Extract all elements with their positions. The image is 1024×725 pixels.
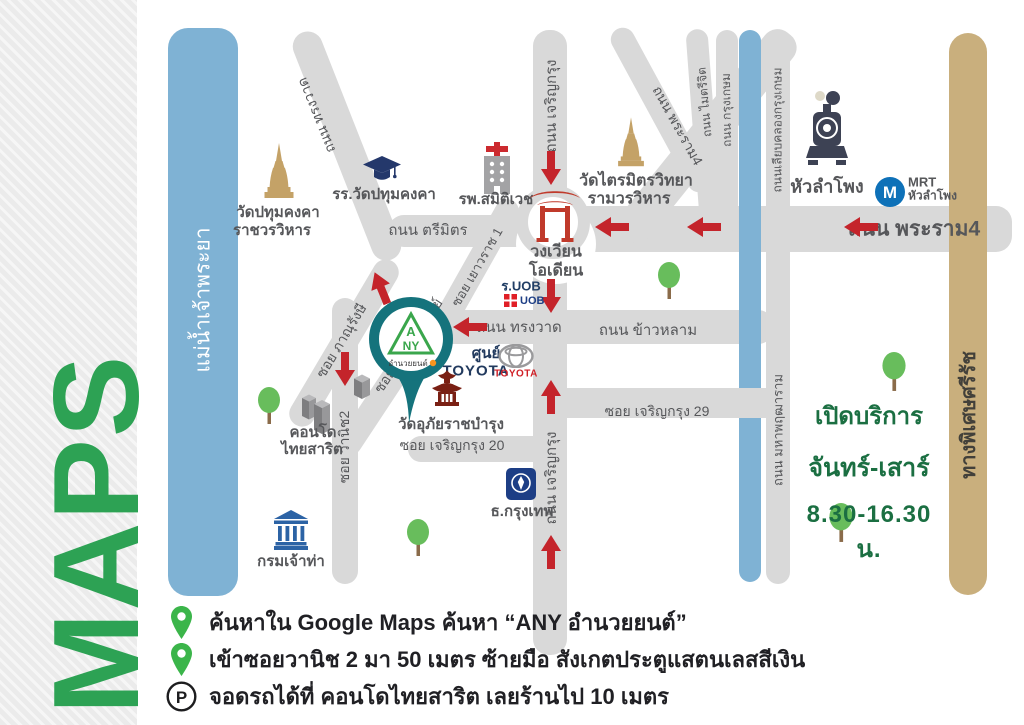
any-pin-letter-a: A (406, 324, 416, 339)
page-title: MAPS (26, 354, 166, 714)
arrow-charoenkrung-north-2 (541, 535, 561, 569)
mrt-m-letter: M (883, 183, 897, 202)
sirat-expressway (949, 33, 987, 595)
arrow-rama4-west-1 (595, 217, 629, 237)
school-label: รร.วัดปทุมคงคา (332, 182, 436, 206)
legend-text-parking: จอดรถได้ที่ คอนโดไทยสาริต เลยร้านไป 10 เ… (209, 679, 669, 714)
government-building-icon (274, 510, 308, 550)
legend-text-search: ค้นหาใน Google Maps ค้นหา “ANY อำนวยยนต์… (209, 605, 687, 640)
uob-logo-text: UOB (520, 295, 544, 307)
road-label-trimit: ถนน ตรีมิตร (388, 218, 467, 242)
wat-pathum-label-2: ราชวรวิหาร (233, 218, 311, 242)
map-pin-icon (163, 643, 199, 676)
road-label-liapkhlong: ถนนเลียบคลองกรุงเกษม (769, 68, 788, 193)
road-label-mahaphruttharam: ถนน มหาพฤฒาราม (768, 374, 789, 486)
legend-row-directions: เข้าซอยวานิช 2 มา 50 เมตร ซ้ายมือ สังเกต… (163, 641, 843, 678)
hours-line-1: เปิดบริการ (791, 396, 947, 435)
river-label: แม่น้ำเจ้าพระยา (187, 227, 220, 372)
tree-icon (657, 262, 681, 300)
chinatown-gate-icon (530, 184, 580, 242)
road-label-charoenkrung-top: ถนน เจริญกรุง (539, 60, 563, 153)
stupa-icon (261, 143, 297, 203)
mrt-label-2: หัวลำโพง (908, 187, 957, 206)
tree-icon (257, 387, 281, 425)
toyota-label-1: ศูนย์ (472, 341, 501, 365)
road-label-charoenkrung29: ซอย เจริญกรุง 29 (605, 401, 710, 423)
opening-hours: เปิดบริการ จันทร์-เสาร์ 8.30-16.30 น. (791, 396, 947, 568)
legend: ค้นหาใน Google Maps ค้นหา “ANY อำนวยยนต์… (163, 604, 843, 715)
arrow-songwat-west (453, 317, 487, 337)
mrt-logo-icon: M (874, 176, 906, 208)
arrow-rama4-west-3 (844, 217, 878, 237)
parking-icon: P (163, 681, 199, 712)
marine-dept-label: กรมเจ้าท่า (257, 549, 325, 573)
arrow-charoenkrung-south-1 (541, 151, 561, 185)
any-pin-caption: อำนวยยนต์ (388, 358, 427, 368)
krung-kasem-canal (739, 30, 761, 582)
hours-line-3: 8.30-16.30 น. (791, 501, 947, 568)
tree-icon (406, 519, 430, 557)
legend-row-search: ค้นหาใน Google Maps ค้นหา “ANY อำนวยยนต์… (163, 604, 843, 641)
any-shop-pin: A NY อำนวยยนต์ (366, 295, 456, 431)
hospital-label: รพ.สมิติเวช (459, 187, 534, 211)
parking-symbol: P (175, 688, 186, 707)
bangkok-bank-logo-icon (506, 468, 536, 500)
map-pin-icon (163, 606, 199, 639)
hua-lamphong-label: หัวลำโพง (790, 172, 863, 201)
toyota-logo-text: TOYOTA (494, 369, 538, 380)
road-label-songwat-h: ถนน ทรงวาด (476, 315, 562, 339)
road-label-charoenkrung20: ซอย เจริญกรุง 20 (400, 435, 505, 457)
uob-logo: UOB (504, 294, 544, 307)
bangkok-bank-label: ธ.กรุงเทพ (491, 499, 554, 523)
arrow-charoenkrung-north-1 (541, 380, 561, 414)
wat-traimit-label-2: รามวรวิหาร (588, 187, 671, 212)
legend-text-directions: เข้าซอยวานิช 2 มา 50 เมตร ซ้ายมือ สังเกต… (209, 642, 805, 677)
arrow-rama4-west-2 (687, 217, 721, 237)
uob-logo-icon (504, 294, 517, 307)
map-poster: MAPS แม่น้ำเจ้าพระยา ทางพิเศษศรีรัช ถนน … (0, 0, 1024, 725)
expressway-label: ทางพิเศษศรีรัช (952, 351, 984, 479)
legend-row-parking: P จอดรถได้ที่ คอนโดไทยสาริต เลยร้านไป 10… (163, 678, 843, 715)
tree-icon (881, 352, 907, 392)
train-icon (806, 88, 848, 168)
road-label-krungkasem: ถนน กรุงเกษม (717, 73, 737, 147)
hours-line-2: จันทร์-เสาร์ (791, 448, 947, 488)
stupa-icon-traimit (615, 116, 647, 172)
toyota-logo-icon (498, 344, 534, 368)
condo-label-2: ไทยสาริต (281, 437, 343, 461)
any-pin-letter-ny: NY (403, 339, 420, 353)
road-label-khaolam: ถนน ข้าวหลาม (599, 318, 697, 342)
